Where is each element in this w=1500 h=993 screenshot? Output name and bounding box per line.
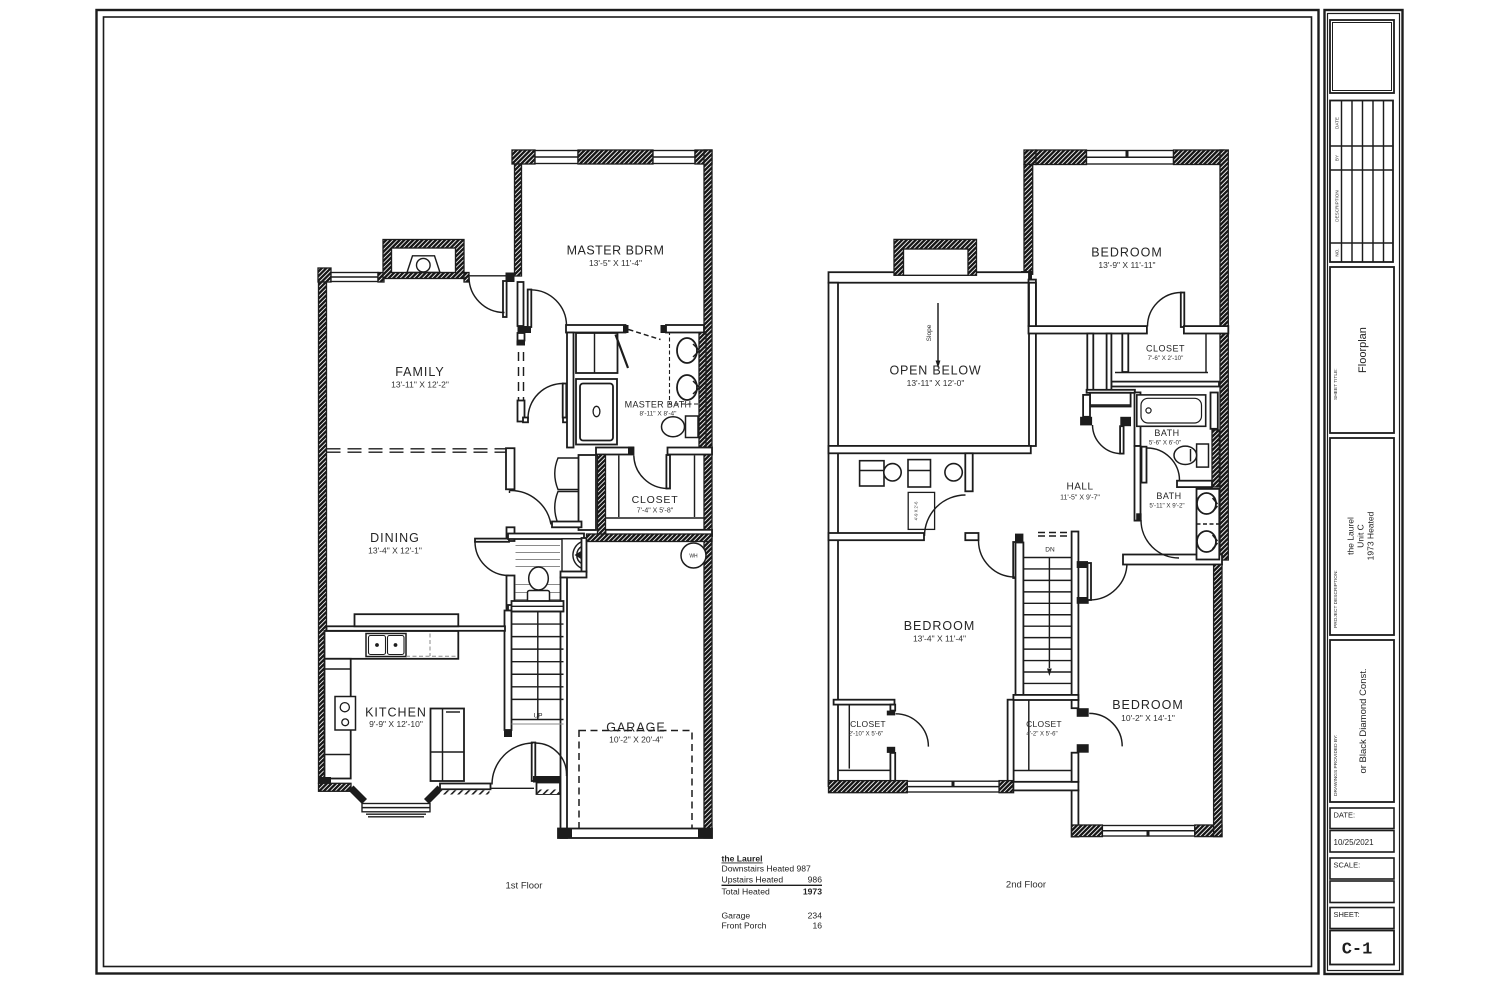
svg-text:13'-11" X 12'-2": 13'-11" X 12'-2" [391,380,449,390]
svg-text:1973 Heated: 1973 Heated [1366,511,1376,560]
svg-text:8'-11" X 8'-4": 8'-11" X 8'-4" [640,411,678,418]
svg-text:4'-9 X 2'-6: 4'-9 X 2'-6 [914,501,919,520]
svg-text:13'-9" X 11'-11": 13'-9" X 11'-11" [1098,260,1155,270]
svg-text:C-1: C-1 [1342,941,1373,960]
svg-text:DESCRIPTION: DESCRIPTION [1335,190,1340,221]
svg-text:5'-11" X 9'-2": 5'-11" X 9'-2" [1149,503,1184,510]
svg-text:BATH: BATH [1156,491,1181,501]
svg-text:SCALE:: SCALE: [1334,861,1361,870]
svg-text:BATH: BATH [1154,428,1179,438]
svg-text:11'-5" X 9'-7": 11'-5" X 9'-7" [1060,495,1100,502]
svg-text:13'-4" X 12'-1": 13'-4" X 12'-1" [368,546,422,556]
svg-text:13'-5" X 11'-4": 13'-5" X 11'-4" [589,258,642,268]
svg-text:13'-4" X 11'-4": 13'-4" X 11'-4" [913,634,966,644]
svg-text:Garage: Garage [722,911,751,921]
svg-text:Unit C: Unit C [1356,524,1366,548]
svg-text:the Laurel: the Laurel [722,854,763,864]
svg-text:DRAWINGS PROVIDED BY:: DRAWINGS PROVIDED BY: [1333,735,1339,796]
svg-text:CLOSET: CLOSET [632,494,679,506]
svg-text:UP: UP [533,713,542,720]
svg-text:Floorplan: Floorplan [1357,327,1369,373]
svg-text:DN: DN [1045,547,1055,554]
svg-text:2'-10" X 5'-6": 2'-10" X 5'-6" [849,732,884,738]
svg-text:CLOSET: CLOSET [1146,344,1185,354]
svg-text:9'-9" X 12'-10": 9'-9" X 12'-10" [369,719,423,729]
svg-text:16: 16 [812,921,822,931]
svg-text:13'-11" X 12'-0": 13'-11" X 12'-0" [907,378,965,388]
svg-text:234: 234 [808,911,823,921]
svg-text:HALL: HALL [1066,482,1093,493]
svg-text:NO.: NO. [1335,248,1340,256]
svg-text:KITCHEN: KITCHEN [365,706,427,720]
svg-text:OPEN BELOW: OPEN BELOW [889,364,981,378]
svg-text:SHEET:: SHEET: [1334,910,1360,919]
svg-text:SHEET TITLE:: SHEET TITLE: [1333,368,1339,400]
svg-text:DATE:: DATE: [1334,811,1356,820]
svg-text:BEDROOM: BEDROOM [1091,246,1163,260]
svg-text:MASTER BATH: MASTER BATH [625,400,692,410]
svg-text:the Laurel: the Laurel [1346,517,1356,555]
svg-text:BY: BY [1335,155,1340,161]
svg-text:2nd Floor: 2nd Floor [1006,880,1046,891]
svg-text:1973: 1973 [803,887,822,897]
svg-text:10'-2" X 20'-4": 10'-2" X 20'-4" [609,735,663,745]
svg-text:GARAGE: GARAGE [606,721,666,735]
svg-text:1st Floor: 1st Floor [506,881,543,892]
svg-text:7'-4" X 5'-8": 7'-4" X 5'-8" [637,508,674,515]
svg-text:Front Porch: Front Porch [722,921,767,931]
svg-text:DATE: DATE [1335,117,1340,129]
svg-text:Slope: Slope [926,324,933,341]
svg-text:MASTER BDRM: MASTER BDRM [567,244,665,258]
svg-text:Total Heated: Total Heated [722,887,770,897]
svg-text:WH: WH [689,554,698,560]
svg-text:Upstairs Heated: Upstairs Heated [722,875,784,885]
svg-text:7'-6" X 2'-10": 7'-6" X 2'-10" [1148,355,1184,362]
svg-text:PROJECT DESCRIPTION:: PROJECT DESCRIPTION: [1333,570,1339,628]
svg-text:FAMILY: FAMILY [395,365,445,379]
svg-text:10/25/2021: 10/25/2021 [1334,838,1375,847]
svg-text:CLOSET: CLOSET [850,719,886,729]
svg-text:or Black Diamond Const.: or Black Diamond Const. [1358,668,1369,773]
svg-text:4'-2" X 5'-6": 4'-2" X 5'-6" [1026,732,1057,738]
svg-text:986: 986 [808,875,823,885]
svg-text:5'-6" X 6'-0": 5'-6" X 6'-0" [1149,440,1181,447]
svg-text:Downstairs Heated 987: Downstairs Heated 987 [722,864,812,874]
svg-text:10'-2" X 14'-1": 10'-2" X 14'-1" [1121,713,1175,723]
svg-text:DINING: DINING [370,531,420,545]
svg-text:CLOSET: CLOSET [1026,719,1062,729]
svg-text:BEDROOM: BEDROOM [1112,698,1184,712]
svg-text:BEDROOM: BEDROOM [904,619,976,633]
